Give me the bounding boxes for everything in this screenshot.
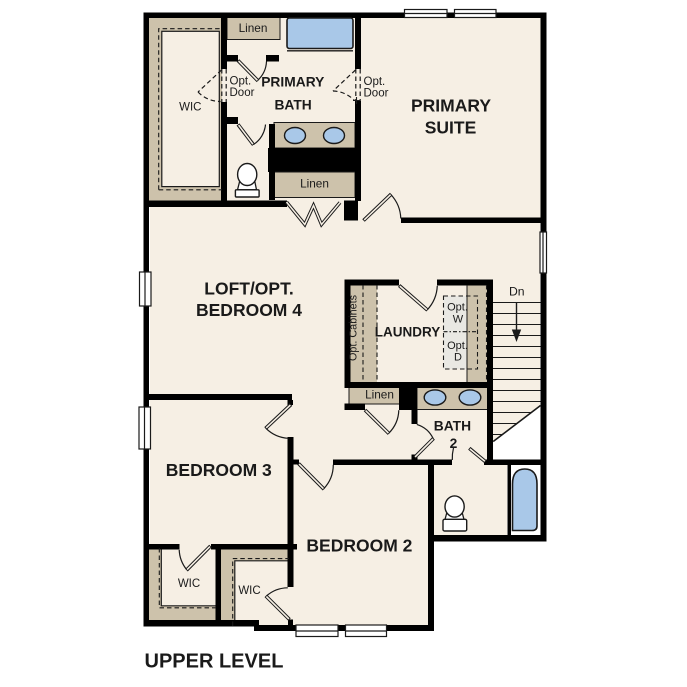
svg-text:Opt.: Opt. — [447, 340, 468, 352]
svg-text:Linen: Linen — [365, 388, 394, 402]
svg-text:Opt.: Opt. — [447, 301, 468, 313]
svg-text:2: 2 — [450, 436, 458, 451]
svg-text:BATH: BATH — [434, 418, 471, 433]
svg-text:LOFT/OPT.: LOFT/OPT. — [204, 279, 293, 299]
svg-text:BEDROOM 4: BEDROOM 4 — [196, 300, 302, 320]
svg-text:WIC: WIC — [238, 585, 260, 597]
svg-text:PRIMARY: PRIMARY — [261, 75, 324, 90]
svg-text:Dn: Dn — [509, 284, 525, 298]
svg-text:Door: Door — [364, 88, 389, 100]
svg-text:BEDROOM 3: BEDROOM 3 — [166, 460, 272, 480]
svg-text:UPPER LEVEL: UPPER LEVEL — [145, 651, 284, 673]
svg-text:D: D — [454, 351, 462, 363]
svg-text:Door: Door — [230, 87, 255, 99]
svg-text:BEDROOM 2: BEDROOM 2 — [306, 536, 412, 556]
svg-text:W: W — [453, 314, 464, 326]
svg-text:LAUNDRY: LAUNDRY — [375, 325, 441, 340]
svg-text:WIC: WIC — [179, 102, 201, 114]
svg-text:Linen: Linen — [300, 176, 329, 190]
svg-text:Linen: Linen — [239, 21, 268, 35]
svg-text:SUITE: SUITE — [425, 118, 477, 138]
svg-text:BATH: BATH — [274, 97, 311, 112]
svg-text:Opt.: Opt. — [230, 76, 252, 88]
svg-text:PRIMARY: PRIMARY — [411, 96, 491, 116]
svg-text:Opt. Cabinets: Opt. Cabinets — [348, 294, 360, 361]
svg-text:WIC: WIC — [178, 578, 200, 590]
svg-text:Opt.: Opt. — [364, 76, 386, 88]
